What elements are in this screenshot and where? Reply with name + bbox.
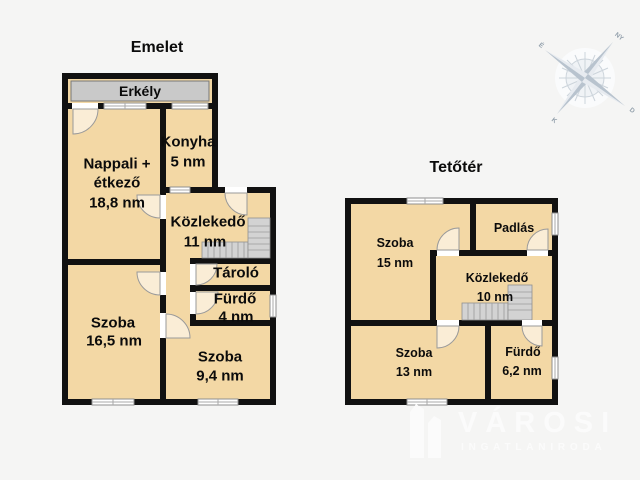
room-label-nappali: Nappali +: [83, 157, 150, 172]
compass-label-sw: K: [550, 117, 558, 126]
room-label-furdo: Fürdő: [214, 292, 257, 307]
compass-label-ne: NY: [613, 31, 625, 42]
stair-run: [462, 303, 508, 320]
wall-segment: [345, 198, 558, 204]
wall-segment: [485, 326, 491, 405]
room-area-furdo62: 6,2 nm: [502, 365, 542, 378]
room-label-furdo62: Fürdő: [505, 346, 540, 359]
wall-segment: [190, 258, 276, 264]
room-area-furdo: 4 nm: [218, 310, 253, 325]
balcony-label: Erkély: [119, 84, 161, 98]
compass-label-se: D: [628, 107, 636, 116]
wall-segment: [345, 198, 351, 405]
wall-segment: [62, 73, 68, 405]
door-opening: [160, 272, 166, 295]
emelet-plan: [62, 73, 276, 405]
brand-building-icon: [410, 404, 441, 458]
compass-label-nw: É: [537, 40, 546, 50]
room-label-szoba-kis: Szoba: [198, 350, 242, 365]
door-opening: [437, 320, 459, 326]
wall-segment: [430, 250, 436, 326]
brand-name: VÁROSI: [458, 407, 617, 440]
compass-rose: É NY K D: [537, 31, 636, 125]
door-opening: [190, 264, 196, 285]
room-area-kozlekedo10: 10 nm: [477, 291, 513, 304]
door-opening: [72, 103, 98, 109]
wall-segment: [62, 259, 166, 265]
tetoter-title: Tetőtér: [429, 160, 482, 176]
room-label-padlas: Padlás: [494, 222, 534, 235]
wall-segment: [470, 198, 476, 256]
floorplan-image: É NY K D Emelet Erkély Nappali + étkező …: [0, 0, 640, 480]
room-label-kozlekedo10: Közlekedő: [466, 272, 529, 285]
room-label-kozlekedo: Közlekedő: [170, 215, 245, 230]
wall-segment: [345, 399, 558, 405]
door-opening: [522, 320, 542, 326]
wall-segment: [62, 73, 218, 79]
room-area-szoba15: 15 nm: [377, 257, 413, 270]
door-opening: [160, 313, 166, 338]
room-label-tarolo: Tároló: [213, 266, 259, 281]
brand-subtitle: INGATLANIRODA: [461, 442, 607, 453]
room-area-konyha: 5 nm: [170, 155, 205, 170]
room-label-szoba15: Szoba: [377, 237, 414, 250]
wall-segment: [160, 193, 166, 405]
door-opening: [527, 250, 548, 256]
room-area-kozlekedo: 11 nm: [184, 235, 227, 250]
room-label-szoba-nagy: Szoba: [91, 316, 135, 331]
door-opening: [225, 187, 247, 193]
emelet-title: Emelet: [131, 40, 183, 56]
door-opening: [190, 292, 196, 314]
room-label-nappali: étkező: [94, 176, 141, 191]
room-area-szoba-kis: 9,4 nm: [196, 369, 244, 384]
room-area-szoba-nagy: 16,5 nm: [86, 334, 142, 349]
door-opening: [437, 250, 459, 256]
room-area-szoba13: 13 nm: [396, 366, 432, 379]
room-label-szoba13: Szoba: [396, 347, 433, 360]
room-label-konyha: Konyha: [160, 135, 215, 150]
room-area-nappali: 18,8 nm: [89, 196, 145, 211]
door-opening: [160, 195, 166, 219]
